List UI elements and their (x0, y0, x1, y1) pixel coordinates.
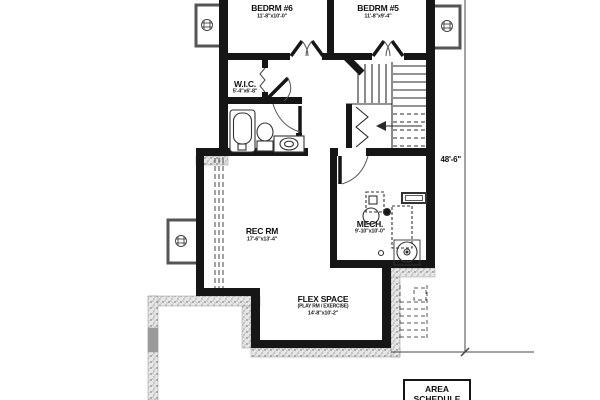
area-schedule-box: AREA SCHEDULE (403, 379, 471, 400)
room-dims-bedrm5: 11'-8"x9'-4" (364, 14, 391, 20)
foundation-stipple-walls (148, 156, 435, 400)
wall-exterior-left-lower (196, 148, 204, 296)
area-schedule-title-line1: AREA (405, 384, 469, 394)
stair-arrow-icon (376, 121, 386, 131)
wall-mech-top (366, 148, 426, 156)
wall-rec-mech-divider (330, 148, 337, 268)
floor-plan-drawing (0, 0, 600, 400)
beam-line-dashed (215, 158, 223, 288)
cleanout-icon (379, 251, 384, 256)
room-label-flex: FLEX SPACE (298, 295, 349, 304)
room-label-recrm: REC RM (246, 227, 278, 236)
room-dims-bedrm6: 11'-8"x10'-0" (257, 14, 287, 20)
tub-faucet-icon (238, 144, 246, 150)
wall-exterior-left-upper (219, 0, 228, 156)
toilet-bowl (257, 123, 273, 141)
wall-flex-left (251, 288, 260, 348)
sink-drain-icon (285, 141, 294, 147)
wall-recrm-bottom (196, 288, 260, 296)
wic-bifold-door (260, 68, 265, 92)
electrical-panel-inner (406, 196, 423, 201)
floor-plan-page: BEDRM #6 11'-8"x10'-0" BEDRM #5 11'-8"x9… (0, 0, 600, 400)
window-well-top-left (196, 5, 219, 46)
area-schedule-title-line2: SCHEDULE (405, 394, 469, 400)
wall-bedroom-divider (327, 0, 334, 56)
room-label-wic: W.I.C. (234, 80, 256, 89)
bathtub-inner (234, 113, 252, 144)
overall-height-dimension: 48'-6" (440, 156, 461, 164)
room-label-bedrm5: BEDRM #5 (357, 4, 398, 13)
room-dims-flex: 14'-8"x10'-2" (308, 311, 338, 317)
room-label-mech: MECH. (357, 220, 383, 229)
room-label-bedrm6: BEDRM #6 (251, 4, 292, 13)
wall-flex-right (382, 268, 391, 348)
room-dims-wic: 5'-4"x6'-8" (233, 89, 258, 95)
wall-hall-1 (228, 53, 290, 60)
wall-exterior-right (426, 0, 435, 268)
wall-hall-3 (404, 53, 426, 60)
room-subtitle-flex: (PLAY RM / EXERCISE) (298, 305, 349, 310)
room-dims-recrm: 17'-6"x13'-4" (247, 237, 277, 243)
window-well-left (168, 220, 196, 263)
wall-bath-top (228, 97, 302, 104)
floor-drain-icon (384, 209, 391, 216)
window-well-top-right (435, 6, 460, 48)
water-heater-center (406, 251, 408, 253)
wall-closet-left (346, 104, 352, 148)
bathroom-fixtures (230, 110, 304, 152)
wall-flex-bottom (251, 340, 391, 348)
staircase (346, 62, 426, 148)
wall-wic-stub-top (262, 60, 268, 68)
furnace-flue (369, 196, 377, 204)
room-dims-mech: 9'-10"x10'-0" (355, 229, 385, 235)
deck-post-dashed (414, 288, 426, 300)
toilet-tank (257, 141, 273, 151)
wall-mech-bottom (330, 260, 435, 268)
deck-stairs-dashed (400, 285, 427, 340)
foundation-window (148, 328, 158, 352)
closet-bifold-door (356, 107, 368, 147)
